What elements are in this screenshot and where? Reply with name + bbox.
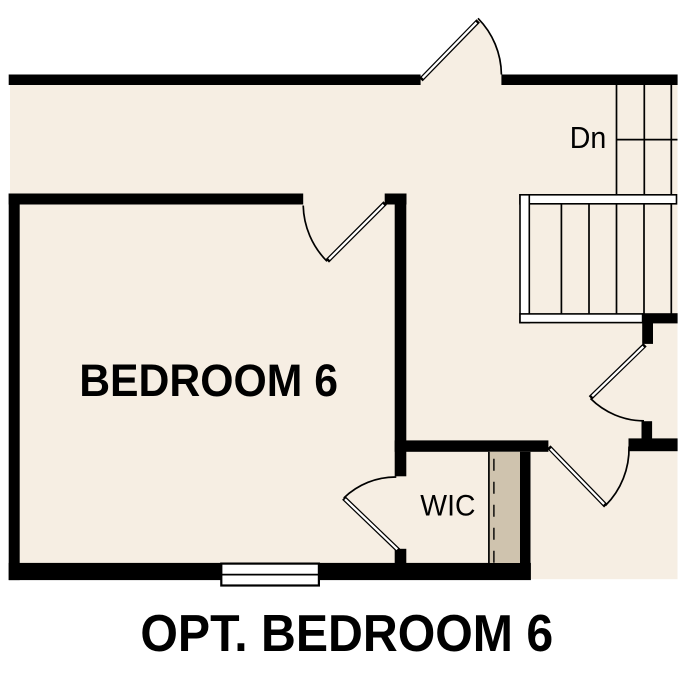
svg-text:WIC: WIC [420,490,475,523]
svg-text:BEDROOM 6: BEDROOM 6 [79,356,338,406]
svg-text:Dn: Dn [570,121,607,155]
svg-text:OPT. BEDROOM 6: OPT. BEDROOM 6 [140,605,553,663]
